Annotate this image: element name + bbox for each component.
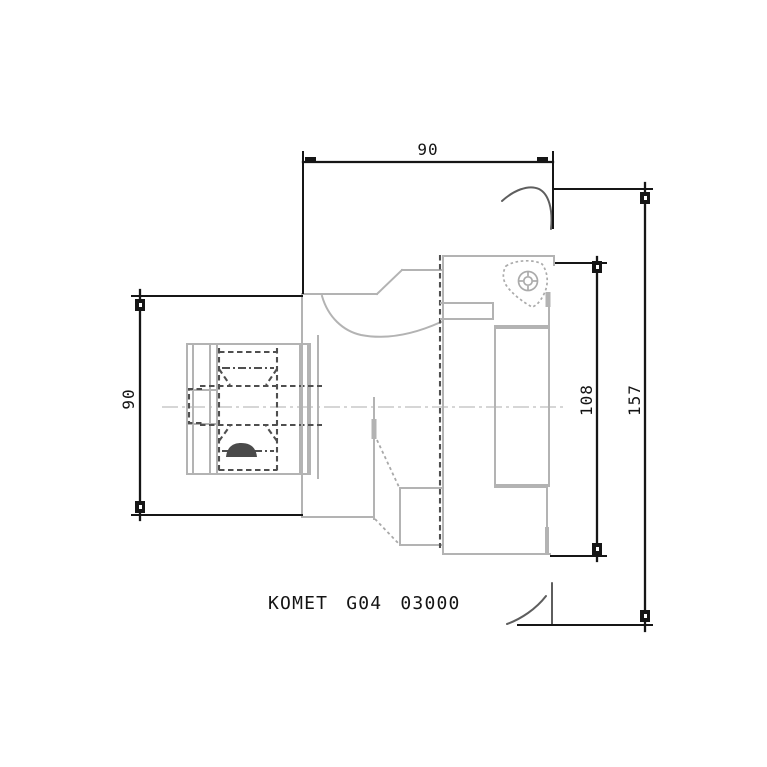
dim-value-108: 108 <box>577 384 596 416</box>
hidden-clamp-bracket <box>189 389 202 423</box>
hidden-chamfer <box>219 369 230 385</box>
dim-tick-hole <box>596 547 599 551</box>
cad-drawing-page: 90 90 108 157 KOMET G04 03000 <box>0 0 767 767</box>
hidden-chamfer <box>219 426 230 441</box>
body-grip-groove <box>322 296 441 337</box>
dim-tick-hole <box>644 614 647 618</box>
dim-tick-hole <box>139 505 142 509</box>
hidden-chamfer-edge <box>377 440 399 487</box>
technical-drawing: 90 90 108 157 KOMET G04 03000 <box>0 0 767 767</box>
dim-value-157: 157 <box>625 384 644 416</box>
hidden-chamfer <box>266 426 277 441</box>
dim-tick <box>537 157 548 162</box>
dim-tick-hole <box>139 303 142 307</box>
break-lines <box>502 187 552 625</box>
hidden-chamfer <box>266 369 277 385</box>
body-top-chamfer <box>377 270 402 294</box>
hidden-chamfer-edge <box>375 519 399 544</box>
dimension-108: 108 <box>551 257 606 561</box>
drawing-title: KOMET G04 03000 <box>268 593 461 614</box>
dim-tick <box>305 157 316 162</box>
clamp-screw-socket <box>524 277 532 285</box>
dim-value-left: 90 <box>119 388 138 409</box>
break-line-top <box>502 187 552 229</box>
cutter-head-outline <box>440 255 554 554</box>
body-lug <box>400 488 441 545</box>
dim-tick-hole <box>644 196 647 200</box>
dim-tick-hole <box>596 265 599 269</box>
drive-slot <box>226 443 257 457</box>
indexable-insert <box>503 261 547 307</box>
break-line-bottom <box>507 596 546 624</box>
dim-value-top: 90 <box>417 140 438 159</box>
